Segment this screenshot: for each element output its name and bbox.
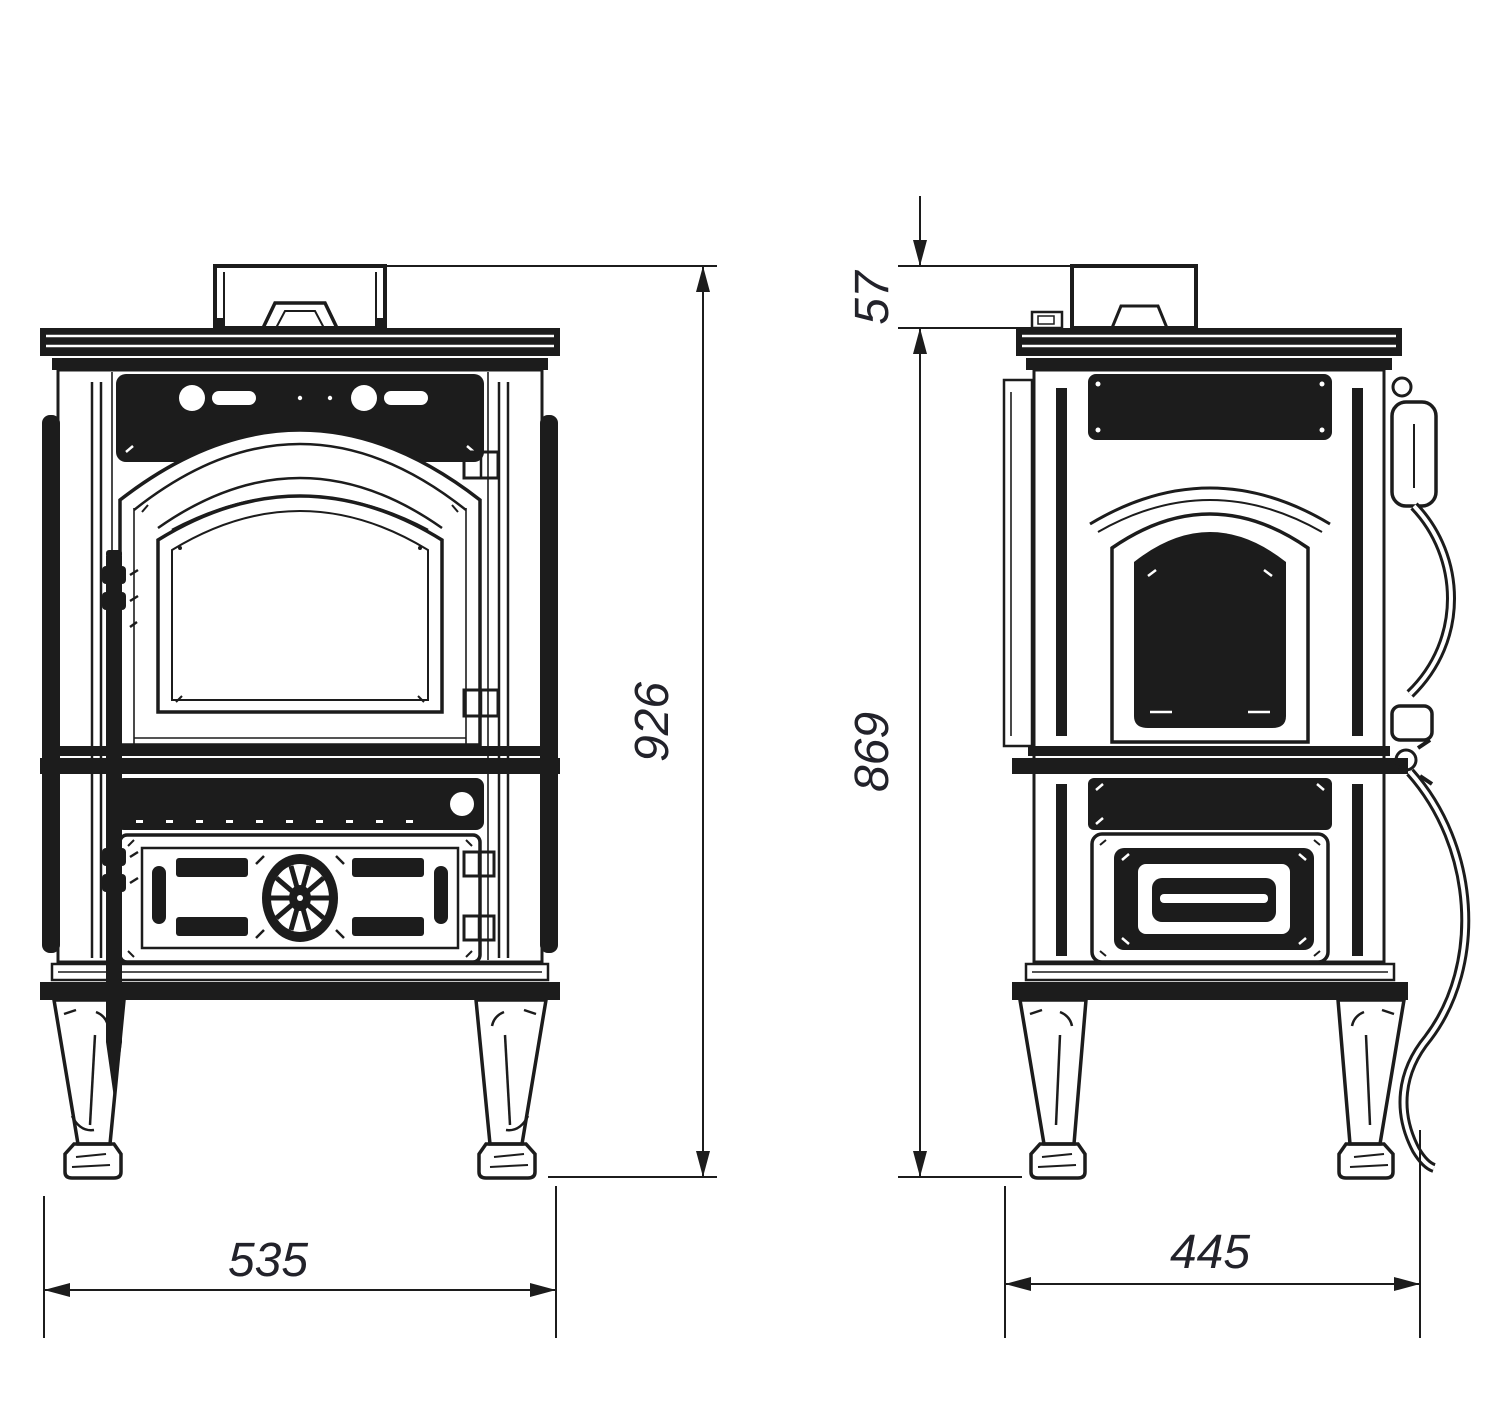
ash-door [120,835,494,962]
side-view [1004,266,1465,1178]
dim-side-height: 869 [846,328,1022,1177]
legs-front [54,1000,546,1178]
side-height-label: 869 [846,712,899,792]
mid-molding-side [1012,746,1408,774]
air-control-knob-lower [450,792,474,816]
top-plate-front [40,328,560,370]
side-drawer-panel [1092,834,1328,962]
side-panel-upper [1088,374,1332,440]
side-arched-panel [1112,514,1308,742]
air-control-knob-left [179,385,205,411]
latch-knob-upper [1393,378,1411,396]
handle-bracket-lower [1392,706,1432,740]
front-width-label: 535 [228,1234,308,1287]
drawing-sheet: 535 926 57 869 [0,0,1500,1427]
air-control-slot-right [384,391,428,405]
side-depth-label: 445 [1170,1226,1250,1279]
front-view [40,266,560,1178]
air-control-band-lower [116,778,484,830]
stove-technical-drawing: 535 926 57 869 [0,0,1500,1427]
plinth-side [1012,964,1408,1000]
flue-offset-label: 57 [846,269,899,325]
air-control-knob-right [351,385,377,411]
flue-collar-side [1032,266,1196,328]
fire-door [120,430,498,745]
top-plate-side [1016,328,1402,370]
side-panel-lower [1088,778,1332,830]
legs-side [1020,1000,1404,1178]
front-height-label: 926 [626,682,679,762]
ash-door-rosette [262,854,338,942]
dim-front-width: 535 [44,1186,556,1338]
dim-side-depth: 445 [1005,1130,1420,1338]
fire-door-glass [158,496,442,712]
flue-collar-front [215,266,385,328]
rear-heat-shield [1004,380,1032,746]
air-control-slot-left [212,391,256,405]
